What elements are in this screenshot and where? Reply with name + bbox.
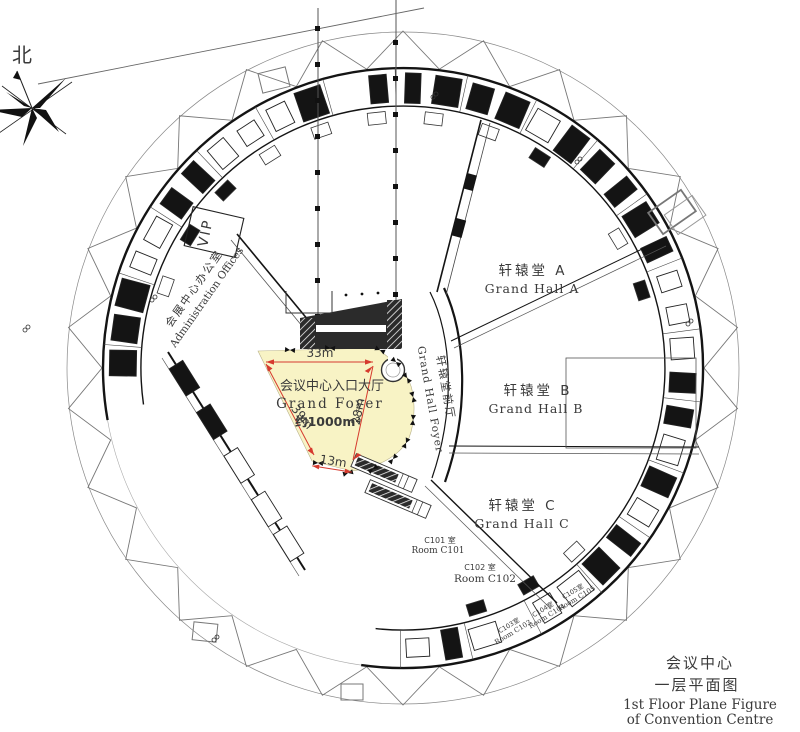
outbuilding-1: [258, 67, 290, 93]
entrance-stair-block: [286, 291, 402, 349]
hall-labels: 轩辕堂 A Grand Hall A 轩辕堂 B Grand Hall B 轩辕…: [415, 262, 584, 531]
roadway: [38, 0, 424, 332]
drawing-caption: 会议中心 一层平面图 1st Floor Plane Figure of Con…: [623, 654, 777, 728]
compass-star: [0, 78, 66, 146]
room-c101-zh: C101 室: [424, 535, 455, 545]
room-c101-en: Room C101: [411, 546, 464, 556]
stair-block-landing: [316, 325, 386, 332]
top-corridor-wall: [437, 120, 481, 292]
column-dot: [361, 293, 364, 296]
vip-label: VIP: [195, 218, 217, 249]
outbuilding-3: [341, 684, 363, 700]
hall-a-label-zh: 轩辕堂 A: [498, 262, 567, 279]
floor-plan-page: 北: [0, 0, 800, 732]
caption-en-2: of Convention Centre: [627, 712, 774, 728]
divider-hall-a-b-2: [454, 246, 666, 348]
compass: 北: [0, 43, 72, 146]
compass-arrow-head: [13, 71, 21, 80]
hall-b-label-en: Grand Hall B: [489, 401, 584, 416]
corridor-block: [452, 218, 466, 238]
hall-c-label-zh: 轩辕堂 C: [488, 497, 557, 514]
ring-room-blocks-inner: [157, 111, 650, 616]
north-label: 北: [12, 43, 32, 67]
site-diagonal-line: [38, 8, 424, 84]
hall-b-label-zh: 轩辕堂 B: [503, 382, 572, 399]
caption-zh-2: 一层平面图: [654, 676, 739, 694]
spiral-stair: [382, 359, 405, 382]
caption-en-1: 1st Floor Plane Figure: [623, 697, 777, 713]
floor-plan-drawing: 北: [0, 0, 800, 732]
dim-33m: 33m: [307, 346, 334, 360]
hall-b-inner-room: [566, 358, 696, 448]
room-c102-en: Room C102: [454, 573, 516, 585]
foyer-label-zh: 会议中心入口大厅: [280, 379, 384, 394]
vip-label-group: VIP: [195, 218, 217, 249]
hall-c-label-en: Grand Hall C: [474, 516, 569, 531]
room-c102-zh: C102 室: [464, 562, 495, 572]
corridor-block: [463, 173, 477, 191]
foyer-area-label: 约1000m²: [295, 414, 361, 429]
caption-zh-1: 会议中心: [666, 654, 734, 672]
stair-block-hatch-right: [387, 300, 402, 349]
hall-a-label-en: Grand Hall A: [485, 281, 580, 296]
top-corridor-wall-2: [446, 123, 490, 295]
stair-block-body: [300, 299, 402, 349]
column-dot: [345, 294, 348, 297]
foyer-label-en: Grand Foyer: [276, 396, 384, 412]
column-dot: [377, 292, 380, 295]
roadway-ticks: [315, 26, 398, 319]
grand-foyer: 33m 39m 28m 13m 会议中心入口大厅 Grand Foyer 约10…: [258, 291, 431, 518]
stair-block-hatch-left: [300, 318, 315, 349]
